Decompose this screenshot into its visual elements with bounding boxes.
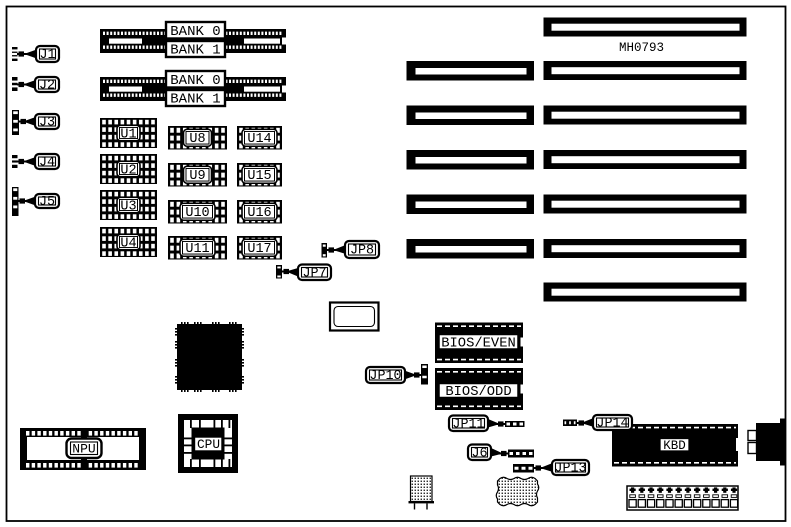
svg-text:MH0793: MH0793 (619, 41, 664, 55)
svg-text:J5: J5 (39, 195, 55, 210)
svg-text:BIOS/EVEN: BIOS/EVEN (441, 335, 516, 351)
svg-text:U1: U1 (120, 127, 136, 142)
svg-text:NPU: NPU (72, 442, 95, 457)
svg-text:U2: U2 (120, 163, 136, 178)
svg-text:J1: J1 (39, 48, 55, 63)
svg-text:U9: U9 (189, 169, 205, 184)
svg-text:CPU: CPU (197, 437, 220, 452)
svg-text:J4: J4 (39, 156, 55, 171)
svg-text:JP14: JP14 (596, 417, 628, 432)
svg-text:J3: J3 (39, 116, 55, 131)
svg-text:U17: U17 (247, 242, 271, 257)
svg-text:U16: U16 (247, 206, 271, 221)
svg-text:BANK 0: BANK 0 (170, 73, 220, 89)
svg-text:U11: U11 (185, 242, 209, 257)
svg-text:J6: J6 (471, 446, 487, 461)
svg-text:JP13: JP13 (554, 462, 586, 477)
svg-text:U4: U4 (120, 236, 136, 251)
svg-text:BANK 0: BANK 0 (170, 24, 220, 40)
svg-text:J2: J2 (39, 79, 55, 94)
svg-text:U8: U8 (189, 132, 205, 147)
svg-text:BIOS/ODD: BIOS/ODD (445, 384, 511, 400)
svg-text:BANK 1: BANK 1 (170, 92, 220, 108)
svg-text:U14: U14 (247, 132, 271, 147)
svg-text:U10: U10 (185, 206, 209, 221)
svg-text:U3: U3 (120, 199, 136, 214)
svg-text:JP11: JP11 (452, 417, 484, 432)
svg-text:JP7: JP7 (302, 266, 326, 281)
svg-text:BANK 1: BANK 1 (170, 43, 220, 59)
svg-text:KBD: KBD (663, 439, 686, 453)
svg-text:JP8: JP8 (350, 244, 374, 259)
svg-text:JP10: JP10 (369, 369, 401, 384)
svg-text:U15: U15 (247, 169, 271, 184)
